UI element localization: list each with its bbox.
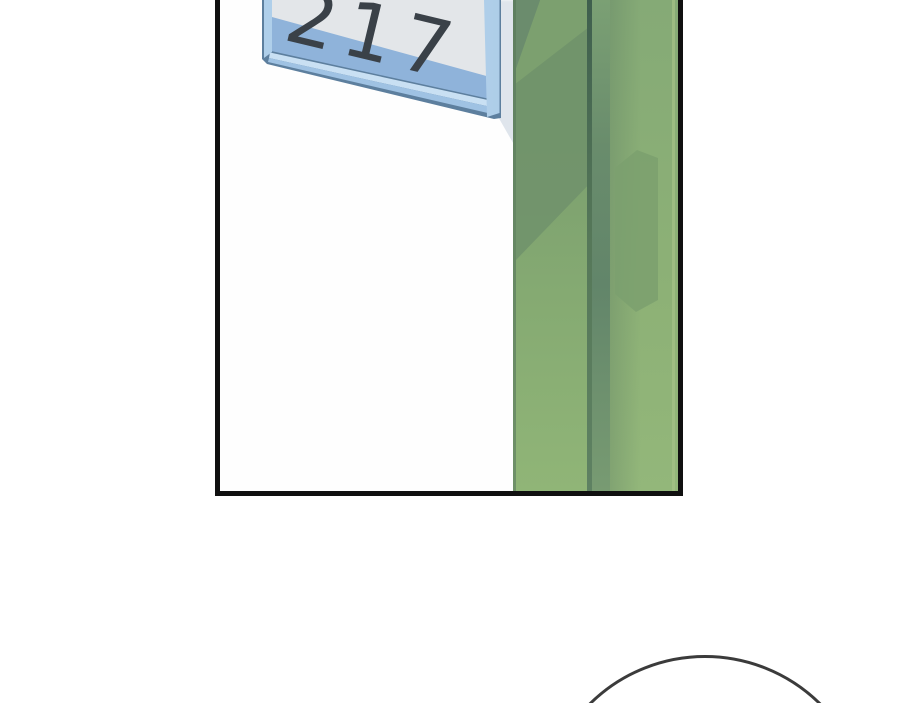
speech-bubble [540,655,870,703]
door-right-edge-highlight [672,0,675,491]
comic-page: 217 [0,0,900,703]
green-door [513,0,678,491]
door-gap-stripe [592,0,611,491]
door-left-reflection-band [516,0,587,491]
door-left-leaf [516,0,587,491]
door-right-leaf [610,0,678,491]
